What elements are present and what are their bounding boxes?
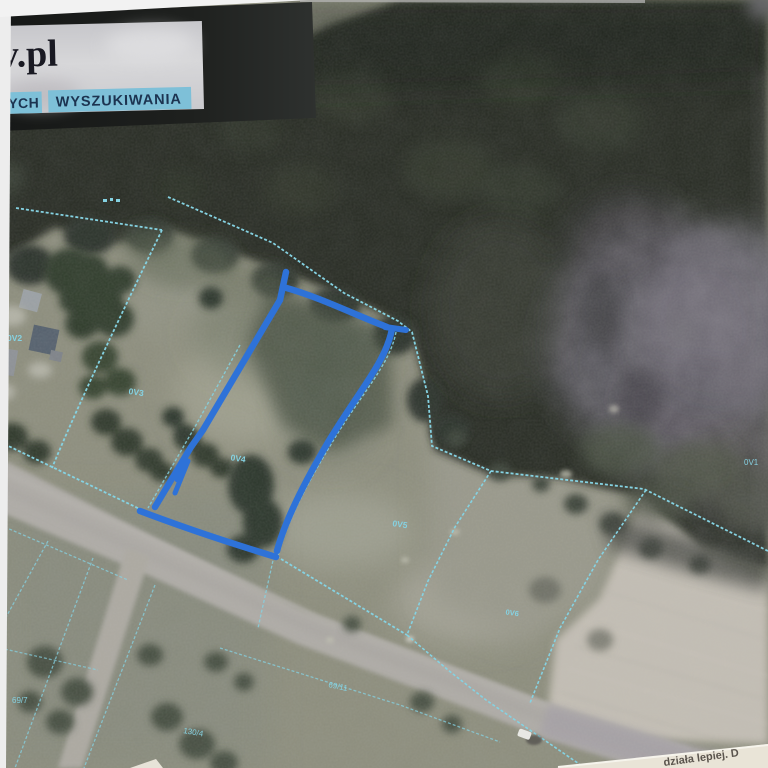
svg-text:0V1: 0V1 — [744, 458, 759, 467]
svg-text:WYSZUKIWANIA: WYSZUKIWANIA — [56, 92, 182, 111]
svg-text:0V6: 0V6 — [505, 608, 519, 619]
svg-text:69/7: 69/7 — [12, 696, 28, 705]
svg-text:0V4: 0V4 — [230, 452, 247, 464]
svg-text:0V5: 0V5 — [392, 518, 409, 530]
svg-text:0V2: 0V2 — [7, 333, 22, 343]
svg-text:0V3: 0V3 — [128, 386, 145, 398]
